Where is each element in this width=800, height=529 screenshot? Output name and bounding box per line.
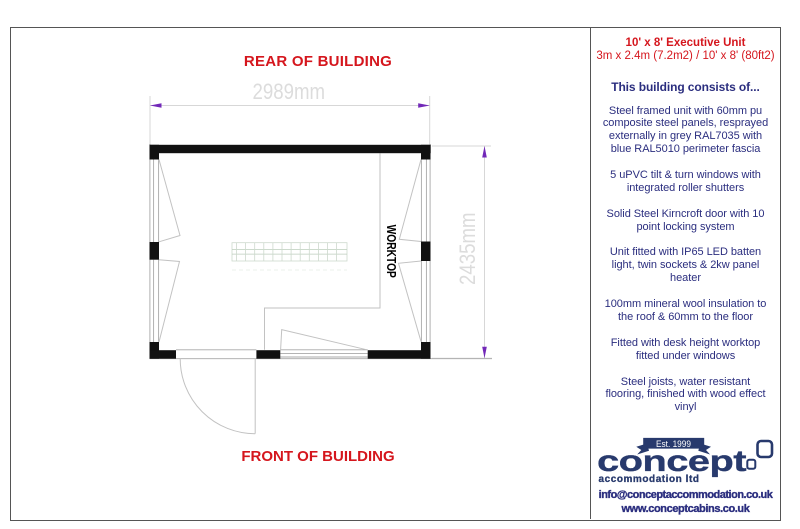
svg-text:WORKTOP: WORKTOP	[384, 225, 398, 278]
svg-text:2435mm: 2435mm	[455, 212, 480, 285]
svg-text:2989mm: 2989mm	[253, 79, 326, 104]
